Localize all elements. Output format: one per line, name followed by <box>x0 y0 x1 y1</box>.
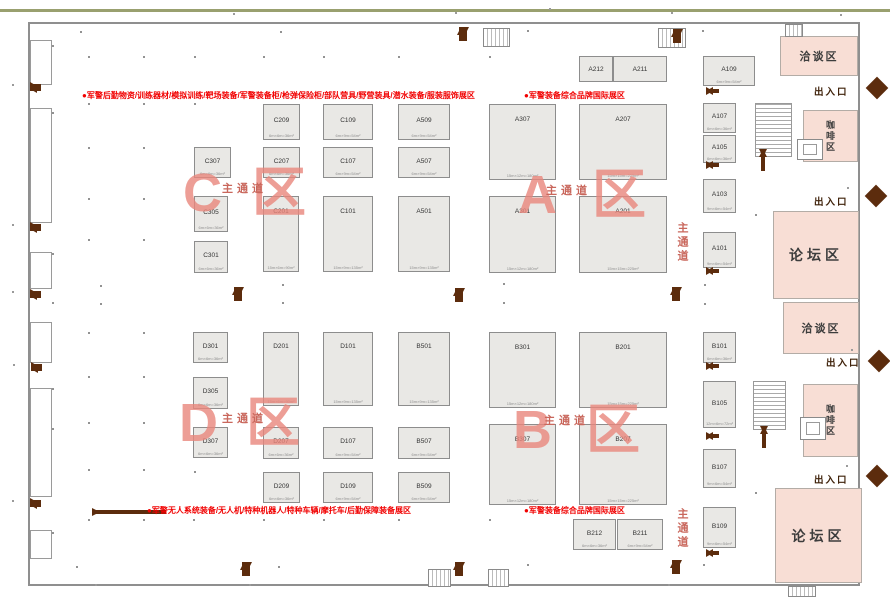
booth-id: D109 <box>324 483 372 490</box>
door-wing <box>12 291 14 293</box>
booth-yd18[interactable]: YD18 <box>52 388 54 390</box>
booth-c301[interactable]: C3016m×6m=36m² <box>194 241 228 273</box>
category-note-2: ●军警装备综合品牌国际展区 <box>524 90 625 101</box>
booth-strip: VIPB003VIPB002VIPB001 <box>704 303 753 319</box>
booth-id: YD01 <box>76 566 78 568</box>
booth-b501[interactable]: B50115m×9m=135m² <box>398 332 450 406</box>
booth-vip-d211[interactable]: VIP+D211 <box>263 519 265 521</box>
main-aisle-label-vertical: 主通道 <box>676 222 690 270</box>
booth-vip-b518[interactable]: VIP+B518 <box>398 519 400 521</box>
booth-a507[interactable]: A5076m×9m=54m² <box>398 147 450 178</box>
vip-booth-pair: VIP+C211VIP+C210 <box>263 56 298 89</box>
main-aisle-label: 主通道 <box>222 410 267 426</box>
booth-id: A211 <box>614 66 666 73</box>
negotiation-area: 洽谈区 <box>783 302 859 354</box>
booth-a212[interactable]: A212 <box>579 56 613 82</box>
booth-size: 9m×6m=54m² <box>704 481 735 486</box>
door-icon <box>668 584 703 603</box>
table-top <box>806 422 820 435</box>
booth-id: YD11 <box>52 532 54 534</box>
coffee-area-label: 咖啡区 <box>824 120 837 153</box>
booth-yc12[interactable]: YC12 <box>52 45 54 47</box>
booth-yc22[interactable]: YC22 <box>52 112 54 114</box>
booth-vip-c308[interactable]: VIP+C308 <box>194 103 196 105</box>
booth-size: 6m×6m=36m² <box>264 496 299 501</box>
booth-id: D311 <box>193 519 195 521</box>
booth-id: VIP+A315 <box>489 56 491 58</box>
arrow-shaft <box>30 87 41 91</box>
booth-column: YD20YD19YD18 <box>52 388 69 426</box>
booth-a105[interactable]: A1056m×6m=36m² <box>703 135 736 163</box>
booth-d618[interactable]: D618 <box>88 469 90 471</box>
booth-b212[interactable]: B2126m×6m=36m² <box>573 519 616 550</box>
booth-vip-a127[interactable]: VIPA127 <box>503 283 505 285</box>
booth-vip-c210[interactable]: VIP+C210 <box>263 56 265 58</box>
booth-d613[interactable]: D613 <box>88 422 90 424</box>
main-aisle-label: 主通道 <box>544 412 589 428</box>
booth-id: C501 <box>143 239 145 241</box>
vip-tag: VIP <box>527 564 529 566</box>
door-icon <box>549 8 580 25</box>
booth-id: B101 <box>704 343 735 350</box>
booth-size: 6m×6m=36m² <box>194 356 227 361</box>
booth-id: D120 <box>323 519 325 521</box>
booth-column: YD17YD16YD15YD14YD13 <box>52 428 69 497</box>
arrow-shaft <box>31 367 42 371</box>
category-note-1: ●军警后勤物资/训练器材/模拟训练/靶场装备/军警装备柜/枪弹保险柜/部队营具/… <box>82 90 475 101</box>
booth-id: VIP+C210 <box>263 56 265 58</box>
booth-yd11[interactable]: YD11 <box>52 532 54 534</box>
vip-tag: VIP <box>323 519 325 521</box>
wall-panel <box>30 322 52 363</box>
booth-a137[interactable]: A137 <box>282 284 284 286</box>
booth-id: C601 <box>88 239 90 241</box>
booth-id: YD18 <box>52 388 54 390</box>
arrow-head <box>706 432 713 440</box>
vip-booth-block: VIP+B317VIP+B315VIP+B318VIP+B320 <box>489 519 556 552</box>
vip-tag: VIP <box>503 302 505 304</box>
booth-id: C515 <box>143 103 145 105</box>
entrance-arrow-icon <box>866 77 889 100</box>
entrance-exit-label-1: 出入口 <box>814 84 849 98</box>
vip-booth-block: VIPC118VIPC119VIPC120VIPC117VIPC116VIPC1… <box>323 56 373 90</box>
booth-id: D513 <box>143 422 145 424</box>
arrow-head <box>244 562 252 570</box>
booth-c209[interactable]: C2096m×6m=36m² <box>263 104 300 140</box>
booth-d518[interactable]: D518 <box>143 469 145 471</box>
booth-id: YC26 <box>52 253 54 255</box>
booth-yd13[interactable]: YD13 <box>52 428 54 430</box>
booth-size: 15m×9m=135m² <box>399 265 449 270</box>
booth-b301[interactable]: B30115m×12m=180m² <box>489 332 556 408</box>
booth-vip-d309[interactable]: VIP+D309 <box>194 471 196 473</box>
booth-id: YC01 <box>80 31 82 33</box>
door-wing <box>12 500 14 502</box>
booth-id: C101 <box>324 208 372 215</box>
booth-id: B137 <box>278 566 280 568</box>
booth-b015[interactable]: B015 <box>282 302 284 304</box>
forum-area-label: 论坛区 <box>789 245 843 265</box>
forum-area-label: 论坛区 <box>792 526 846 546</box>
booth-size: 15m×9m=135m² <box>324 265 372 270</box>
booth-id: C606 <box>88 198 90 200</box>
booth-vip-b123[interactable]: VIPB123 <box>703 564 705 566</box>
booth-id: A127 <box>503 283 505 285</box>
arrow-head <box>706 87 713 95</box>
booth-vip-b128[interactable]: VIPB128 <box>527 564 529 566</box>
booth-vip-b001[interactable]: VIPB001 <box>704 303 706 305</box>
booth-id: VIP+B518 <box>398 519 400 521</box>
booth-size: 6m×6m=36m² <box>704 126 735 131</box>
arrow-head <box>457 288 465 296</box>
loading-dock-icon <box>483 28 510 47</box>
booth-id: A307 <box>490 116 555 123</box>
booth-vip-a515[interactable]: VIP+A515 <box>398 56 400 58</box>
booth-block: C503C505C502C501 <box>143 239 176 272</box>
booth-block: C512C513C511C510 <box>143 147 176 180</box>
booth-c109[interactable]: C1096m×9m=54m² <box>323 104 373 140</box>
booth-d622[interactable]: D622 <box>88 519 90 521</box>
zone-letter-b: B <box>513 402 552 458</box>
booth-c619[interactable]: C619 <box>88 56 90 58</box>
vip-tag: VIP <box>755 214 757 216</box>
booth-size: 6m×9m=54m² <box>324 171 372 176</box>
door-icon <box>13 364 29 386</box>
arrow-head <box>461 27 469 35</box>
booth-b507[interactable]: B5076m×9m=54m² <box>398 427 450 459</box>
negotiation-area: 洽谈区 <box>780 36 858 76</box>
area-size: 18m² <box>193 519 195 521</box>
booth-strip: A156A155A153A152A151A150A139A138A137 <box>282 284 435 298</box>
booth-block: D511D510D512D513 <box>143 422 176 455</box>
booth-a501[interactable]: A50115m×9m=135m² <box>398 196 450 272</box>
entrance-exit-label-2: 出入口 <box>814 194 849 208</box>
booth-yd33[interactable]: YD33 <box>100 303 102 305</box>
booth-block: D507D506D508D509 <box>143 376 176 409</box>
booth-size: 6m×6m=36m² <box>195 225 227 230</box>
booth-id: A137 <box>282 284 284 286</box>
booth-id: B001 <box>704 303 706 305</box>
booth-c101[interactable]: C10115m×9m=135m² <box>323 196 373 272</box>
booth-id: A509 <box>399 117 449 124</box>
booth-strip: VIPA126VIPA125VIPA123VIPA122 <box>704 284 769 300</box>
arrow-head <box>706 362 713 370</box>
booth-d301[interactable]: D3016m×6m=36m² <box>193 332 228 363</box>
entrance-arrow-icon <box>868 350 890 373</box>
booth-id: A212 <box>580 66 612 73</box>
door-wing <box>233 13 235 15</box>
booth-d609[interactable]: D609 <box>88 376 90 378</box>
booth-id: YD21 <box>52 302 54 304</box>
booth-d522[interactable]: D522 <box>143 519 145 521</box>
booth-yd01[interactable]: YD01 <box>76 566 78 568</box>
arrow-head <box>706 267 713 275</box>
wall-panel <box>30 530 52 559</box>
door-icon <box>12 84 29 109</box>
booth-strip: YD10YD09YD08YD07YD06YD05YD03YD02YD01 <box>76 566 228 582</box>
booth-size: 15m×15m=225m² <box>580 266 666 271</box>
door-icon <box>447 585 483 603</box>
booth-d513[interactable]: D513 <box>143 422 145 424</box>
booth-block: C603C605C602C601 <box>88 239 121 272</box>
booth-id: B211 <box>618 530 662 537</box>
entrance-arrow-icon <box>866 465 889 488</box>
main-aisle-label: 主通道 <box>222 180 267 196</box>
booth-c107[interactable]: C1076m×9m=54m² <box>323 147 373 178</box>
arrow-head <box>760 426 768 434</box>
booth-id: A105 <box>704 144 735 151</box>
vip-booth-pair: VIP+D308VIP+D309 <box>194 471 229 504</box>
booth-block: C508C509C507C506 <box>143 198 176 231</box>
booth-size: 6m×9m=54m² <box>324 133 372 138</box>
booth-c606[interactable]: C606 <box>88 198 90 200</box>
booth-c515[interactable]: C515 <box>143 103 145 105</box>
booth-column: YC23YC25YC26 <box>52 253 69 294</box>
booth-vip-a122[interactable]: VIPA122 <box>704 284 706 286</box>
booth-column: VIPA118VIPA119VIPA120VIPA121 <box>755 214 772 265</box>
booth-id: D618 <box>88 469 90 471</box>
booth-id: YD33 <box>100 303 102 305</box>
door-icon <box>12 500 30 528</box>
booth-b105[interactable]: B10512m×6m=72m² <box>703 381 736 428</box>
booth-id: A207 <box>580 116 666 123</box>
booth-id: D505 <box>143 332 145 334</box>
booth-size: 15m×6m=90m² <box>264 265 298 270</box>
booth-id: B105 <box>704 400 735 407</box>
booth-strip: B155B153B152B151B150B139B138B137 <box>278 566 414 582</box>
entrance-arrow-icon <box>865 185 888 208</box>
booth-block: C617C618C616C615 <box>88 103 121 136</box>
booth-column: YD12YD11 <box>52 532 69 559</box>
booth-d605[interactable]: D605 <box>88 332 90 334</box>
arrow-head <box>759 149 767 157</box>
booth-column: VIPB118VIPB119VIPB120VIPB122 <box>755 492 772 547</box>
booth-block: D602D601D603D605 <box>88 332 121 365</box>
booth-yc26[interactable]: YC26 <box>52 253 54 255</box>
booth-a211[interactable]: A211 <box>613 56 667 82</box>
booth-c501[interactable]: C501 <box>143 239 145 241</box>
booth-block: D502D501D503D505 <box>143 332 176 365</box>
booth-strip: B023B022B021B020B019B018B017B016B015 <box>282 302 435 316</box>
booth-vip-c115[interactable]: VIPC115 <box>323 56 325 58</box>
booth-id: B015 <box>282 302 284 304</box>
booth-id: B201 <box>580 344 666 351</box>
booth-id: D201 <box>264 343 298 350</box>
booth-b509[interactable]: B5096m×9m=54m² <box>398 472 450 503</box>
table-top <box>803 144 817 155</box>
booth-size: 6m×9m=54m² <box>618 543 662 548</box>
booth-id: C311 <box>194 56 196 58</box>
booth-strip: YC27YC28YC29YC30YC31YC32YC33 <box>100 285 220 298</box>
booth-pair-18sqm: 18m²C31218m²C311 <box>194 56 229 89</box>
booth-strip: A021A020A019A018A017A016A015A013 <box>280 31 418 45</box>
booth-vip-a001[interactable]: VIPA001 <box>702 30 704 32</box>
booth-c510[interactable]: C510 <box>143 147 145 149</box>
booth-vip-a005[interactable]: VIPA005 <box>527 30 529 32</box>
booth-b137[interactable]: B137 <box>278 566 280 568</box>
booth-d109[interactable]: D1096m×9m=54m² <box>323 472 373 503</box>
booth-b211[interactable]: B2116m×9m=54m² <box>617 519 663 550</box>
top-green-line <box>0 9 890 12</box>
booth-id: YC22 <box>52 112 54 114</box>
booth-block: C621C622C620C619 <box>88 56 121 89</box>
booth-d107[interactable]: D1076m×9m=54m² <box>323 427 373 459</box>
booth-d311[interactable]: 18m²D311 <box>193 519 195 521</box>
vip-tag: VIP <box>503 283 505 285</box>
loading-dock-icon <box>428 569 451 587</box>
booth-c610[interactable]: C610 <box>88 147 90 149</box>
booth-a107[interactable]: A1076m×6m=36m² <box>703 103 736 133</box>
wall-panel <box>30 108 52 223</box>
booth-block: D620D619D621D622 <box>88 519 121 552</box>
negotiation-area-label: 洽谈区 <box>800 48 839 64</box>
booth-vip-b122[interactable]: VIPB122 <box>755 492 757 494</box>
booth-a509[interactable]: A5096m×9m=54m² <box>398 104 450 140</box>
booth-id: B501 <box>399 343 449 350</box>
booth-block: D607D606D608D609 <box>88 376 121 409</box>
door-wing <box>671 12 673 14</box>
booth-yc33[interactable]: YC33 <box>100 285 102 287</box>
negotiation-area-label: 洽谈区 <box>802 320 841 336</box>
wall-panel <box>30 252 52 289</box>
booth-id: B109 <box>704 523 735 530</box>
vip-tag: VIP <box>704 303 706 305</box>
booth-d509[interactable]: D509 <box>143 376 145 378</box>
coffee-table-icon <box>797 139 823 160</box>
booth-vip-d120[interactable]: VIPD120 <box>323 519 325 521</box>
zone-suffix-b: 区 <box>586 402 640 458</box>
booth-size: 15m×9m=135m² <box>399 399 449 404</box>
forum-area: 论坛区 <box>773 211 859 299</box>
booth-size: 12m×6m=72m² <box>704 421 735 426</box>
booth-size: 6m×9m=54m² <box>324 496 372 501</box>
booth-size: 9m×6m=54m² <box>704 541 735 546</box>
booth-id: C519 <box>143 56 145 58</box>
category-note-3: ●军警无人系统装备/无人机/特种机器人/特种车辆/摩托车/后勤保障装备展区 <box>147 505 411 516</box>
wall-panel <box>30 40 52 85</box>
vip-tag: VIP <box>703 564 705 566</box>
booth-yd21[interactable]: YD21 <box>52 302 54 304</box>
arrow-head <box>674 287 682 295</box>
area-size: 18m² <box>194 56 196 58</box>
vip-booth-pair: VIP+C309VIP+C308 <box>194 103 229 136</box>
booth-b101[interactable]: B1016m×6m=36m² <box>703 332 736 363</box>
booth-id: D101 <box>324 343 372 350</box>
booth-id: D609 <box>88 376 90 378</box>
door-wing <box>13 364 15 366</box>
booth-size: 15m×9m=135m² <box>324 399 372 404</box>
door-wing <box>455 12 457 14</box>
booth-id: C107 <box>324 158 372 165</box>
booth-c506[interactable]: C506 <box>143 198 145 200</box>
category-note-4: ●军警装备综合品牌国际展区 <box>524 505 625 516</box>
booth-vip-a315[interactable]: VIP+A315 <box>489 56 491 58</box>
booth-a013[interactable]: A013 <box>280 31 282 33</box>
booth-size: 9m×6m=54m² <box>704 206 735 211</box>
booth-column: YD25YD23YD22YD21 <box>52 302 69 353</box>
booth-b109[interactable]: B1099m×6m=54m² <box>703 507 736 548</box>
entrance-exit-label-3: 出入口 <box>826 355 861 369</box>
booth-id: A122 <box>704 284 706 286</box>
booth-id: A001 <box>702 30 704 32</box>
booth-id: VIP+C308 <box>194 103 196 105</box>
exhibition-floor-plan: 洽谈区咖啡区论坛区洽谈区咖啡区论坛区A1096m×9m=54m²C2096m×6… <box>0 0 890 609</box>
booth-size: 6m×9m=54m² <box>399 496 449 501</box>
vip-tag: VIP <box>755 492 757 494</box>
booth-strip: YC10YC09YC08YC07YC06YC05YC03YC02YC01 <box>80 31 228 45</box>
booth-id: A107 <box>704 113 735 120</box>
loading-dock-icon <box>788 586 816 597</box>
booth-a109[interactable]: A1096m×9m=54m² <box>703 56 755 86</box>
door-wing <box>12 224 14 226</box>
booth-b201[interactable]: B20115m×15m=225m² <box>579 332 667 408</box>
door-wing <box>549 8 551 10</box>
booth-block: C517C518C516C515 <box>143 103 176 136</box>
booth-c601[interactable]: C601 <box>88 239 90 241</box>
booth-a101[interactable]: A1019m×6m=54m² <box>703 232 736 268</box>
booth-b107[interactable]: B1079m×6m=54m² <box>703 449 736 488</box>
booth-strip: VIPB127VIPB126VIPB125VIPB123 <box>703 564 769 582</box>
booth-id: A013 <box>280 31 282 33</box>
booth-pair-18sqm: 18m²D31018m²D311 <box>193 519 228 552</box>
booth-c519[interactable]: C519 <box>143 56 145 58</box>
booth-vip-a121[interactable]: VIPA121 <box>755 214 757 216</box>
vip-booth-block: VIP+A318VIP+A320VIP+A317VIP+A315 <box>489 56 556 89</box>
booth-id: C115 <box>323 56 325 58</box>
booth-size: 15m×12m=180m² <box>490 266 555 271</box>
booth-id: C209 <box>264 117 299 124</box>
forum-area: 论坛区 <box>775 488 862 583</box>
booth-id: YC33 <box>100 285 102 287</box>
booth-a103[interactable]: A1039m×6m=54m² <box>703 179 736 213</box>
booth-vip-b320[interactable]: VIP+B320 <box>489 519 491 521</box>
booth-d505[interactable]: D505 <box>143 332 145 334</box>
door-icon <box>840 14 858 28</box>
booth-block: D611D610D612D613 <box>88 422 121 455</box>
booth-strip: YD27YD28YD29YD30YD31YD32YD33 <box>100 303 220 316</box>
booth-id: C510 <box>143 147 145 149</box>
booth-id: B128 <box>527 564 529 566</box>
booth-id: C506 <box>143 198 145 200</box>
vip-tag: VIP <box>702 30 704 32</box>
booth-id: A109 <box>704 66 754 73</box>
vip-booth-pair: VIP+D210VIP+D211 <box>263 519 298 552</box>
booth-id: D301 <box>194 343 227 350</box>
booth-block: C612C613C611C610 <box>88 147 121 180</box>
booth-yc01[interactable]: YC01 <box>80 31 82 33</box>
booth-c615[interactable]: C615 <box>88 103 90 105</box>
booth-c311[interactable]: 18m²C311 <box>194 56 196 58</box>
door-icon <box>12 224 29 249</box>
booth-d101[interactable]: D10115m×9m=135m² <box>323 332 373 406</box>
booth-id: B212 <box>574 530 615 537</box>
booth-id: YC12 <box>52 45 54 47</box>
booth-strip: VIPA012VIPA011VIPA010VIPA009VIPA008VIPA0… <box>527 30 661 47</box>
booth-id: A501 <box>399 208 449 215</box>
booth-vip-b005[interactable]: VIPB005 <box>503 302 505 304</box>
door-wing <box>249 584 251 586</box>
booth-strip: VIPA003VIPA002VIPA001 <box>702 30 751 45</box>
arrow-head <box>236 287 244 295</box>
booth-id: D518 <box>143 469 145 471</box>
booth-d209[interactable]: D2096m×6m=36m² <box>263 472 300 503</box>
booth-id: A507 <box>399 158 449 165</box>
vip-tag: VIP <box>704 284 706 286</box>
booth-id: D622 <box>88 519 90 521</box>
booth-id: VIP+D211 <box>263 519 265 521</box>
booth-block: D616D615D617D618 <box>88 469 121 502</box>
booth-id: B123 <box>703 564 705 566</box>
